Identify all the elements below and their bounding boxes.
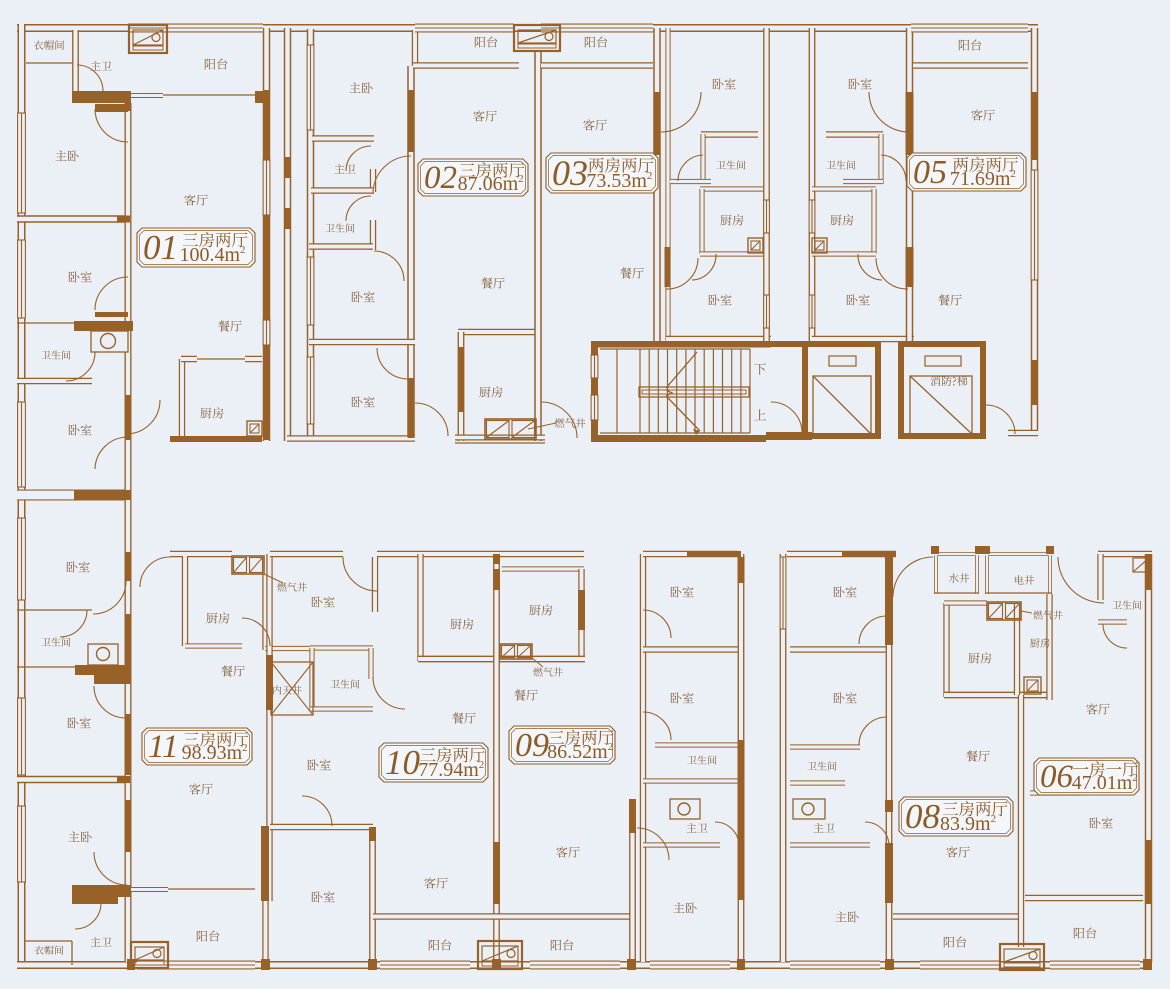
svg-text:05: 05	[913, 154, 947, 191]
svg-text:03: 03	[552, 153, 588, 193]
svg-text:47.01m2: 47.01m2	[1072, 772, 1138, 794]
svg-text:06: 06	[1040, 759, 1074, 795]
svg-text:11: 11	[148, 729, 179, 765]
svg-text:71.69m2: 71.69m2	[950, 168, 1016, 190]
svg-text:73.53m2: 73.53m2	[586, 170, 652, 192]
svg-text:77.94m2: 77.94m2	[418, 759, 484, 781]
svg-text:09: 09	[515, 727, 549, 764]
svg-text:10: 10	[385, 743, 421, 782]
svg-text:98.93m2: 98.93m2	[182, 742, 248, 764]
svg-text:100.4m2: 100.4m2	[179, 244, 245, 266]
svg-text:08: 08	[905, 797, 941, 836]
svg-text:87.06m2: 87.06m2	[458, 173, 524, 195]
svg-text:01: 01	[143, 228, 178, 267]
svg-text:86.52m2: 86.52m2	[547, 741, 613, 763]
svg-text:02: 02	[424, 160, 457, 196]
svg-text:83.9m2: 83.9m2	[940, 813, 996, 835]
